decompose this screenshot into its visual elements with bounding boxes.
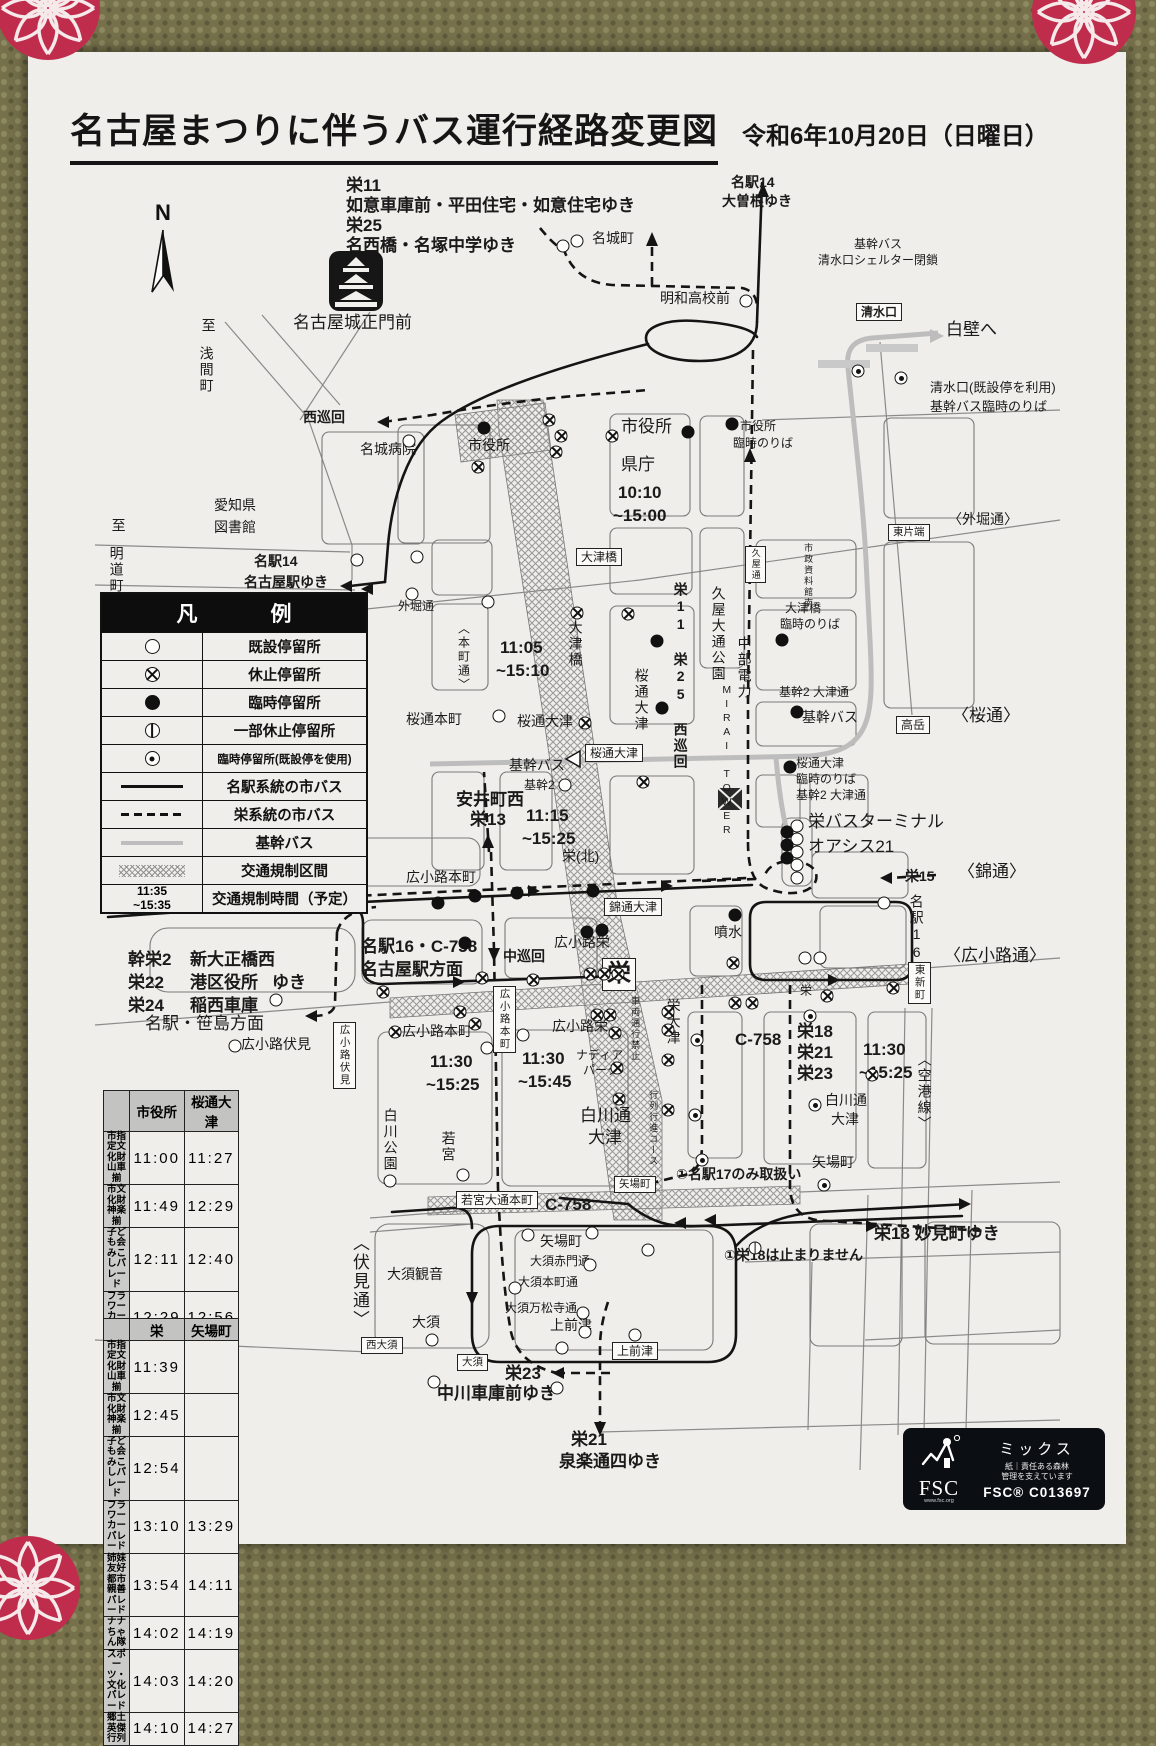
event-time: 13:29	[184, 1500, 239, 1553]
stop-symbol-c	[481, 1042, 494, 1055]
event-name: ナナちゃん隊	[104, 1617, 130, 1649]
map-label: 大津橋	[576, 548, 622, 566]
table-row: 子ども会 みこしパレード12:54	[104, 1436, 239, 1500]
stop-symbol-d	[469, 890, 482, 903]
map-label: 広小路栄	[552, 1019, 608, 1035]
stop-symbol-c	[270, 994, 283, 1007]
stop-symbol-x	[622, 608, 635, 621]
map-label: 名駅14	[731, 175, 775, 191]
map-label: C-758	[545, 1195, 591, 1214]
map-label: 錦通大津	[604, 898, 662, 916]
map-label: 車両通行禁止	[630, 996, 640, 1062]
stop-symbol-c	[571, 235, 584, 248]
map-label: 幹栄2	[128, 950, 171, 969]
map-label: 大須	[457, 1354, 488, 1371]
stop-symbol-cd	[804, 1010, 817, 1023]
legend-row: 臨時停留所(既設停を使用)	[102, 744, 366, 772]
map-label: 栄バスターミナル	[808, 812, 944, 831]
stop-symbol-x	[729, 997, 742, 1010]
fsc-line1: 紙｜責任ある森林	[975, 1462, 1099, 1472]
legend-row: 栄系統の市バス	[102, 800, 366, 828]
event-name: 市文化財 神楽揃	[104, 1394, 130, 1437]
map-label: 桜通大津	[517, 714, 573, 730]
legend-label: 交通規制区間	[203, 860, 366, 881]
map-label: 栄18 妙見町ゆき	[874, 1224, 1000, 1243]
stop-symbol-c	[577, 1307, 590, 1320]
stop-symbol-x	[598, 968, 611, 981]
map-label: 大須	[412, 1315, 440, 1331]
map-label: 大曽根ゆき	[722, 194, 792, 210]
legend-symbol: 11:35 ~15:35	[102, 885, 203, 912]
stop-symbol-x	[662, 1006, 675, 1019]
map-label: 名駅16	[908, 894, 924, 962]
map-label: 行列行進コース	[648, 1090, 658, 1167]
timetable-header	[104, 1319, 130, 1341]
legend-row: 既設停留所	[102, 632, 366, 660]
event-time	[184, 1341, 239, 1394]
map-label: 大須万松寺通	[505, 1302, 577, 1315]
stop-symbol-x	[579, 717, 592, 730]
event-time: 12:45	[130, 1394, 185, 1437]
timetable-header: 市役所	[130, 1091, 185, 1132]
event-name: 子ども会 みこしパレード	[104, 1227, 130, 1291]
stop-symbol-c	[559, 779, 572, 792]
stop-symbol-c	[229, 1040, 242, 1053]
map-label: 清水口シェルター閉鎖	[818, 254, 938, 267]
map-label: 市政資料館南	[803, 543, 813, 609]
map-label: 清水口	[856, 303, 902, 321]
stop-symbol-cd	[689, 1109, 702, 1122]
legend-symbol	[102, 829, 203, 856]
stop-symbol-c	[814, 952, 827, 965]
compass-needle-icon	[128, 226, 198, 306]
map-label: 大須本町通	[518, 1276, 578, 1289]
table-row: スポーツ・文化 パレード14:0314:20	[104, 1649, 239, 1713]
table-row: 市指定文化財 山車揃11:0011:27	[104, 1132, 239, 1185]
stop-symbol-h	[749, 1242, 762, 1255]
stop-symbol-d	[581, 926, 594, 939]
legend-row: 臨時停留所	[102, 688, 366, 716]
map-label: 〈桜通〉	[952, 706, 1020, 725]
poster-title: 名古屋まつりに伴うバス運行経路変更図	[70, 103, 718, 165]
event-time	[184, 1436, 239, 1500]
map-label: 白川公園	[382, 1108, 398, 1172]
map-label: 栄21	[571, 1430, 607, 1449]
stop-symbol-d	[682, 426, 695, 439]
nagoya-castle-icon	[328, 250, 384, 312]
legend-row: 一部休止停留所	[102, 716, 366, 744]
stop-symbol-x	[555, 430, 568, 443]
stop-symbol-cd	[809, 1099, 822, 1112]
map-label: 基幹バス臨時のりば	[930, 400, 1047, 415]
stop-symbol-c	[522, 1229, 535, 1242]
map-label: 白壁へ	[946, 320, 997, 339]
legend-row: 名駅系統の市バス	[102, 772, 366, 800]
stop-symbol-x	[476, 972, 489, 985]
map-label: 臨時のりば	[733, 437, 793, 450]
event-time: 14:20	[184, 1649, 239, 1713]
legend-label: 一部休止停留所	[203, 720, 366, 741]
pin-flower	[0, 0, 104, 64]
event-name: 市指定文化財 山車揃	[104, 1132, 130, 1185]
map-label: 11:30	[430, 1052, 473, 1071]
stop-symbol-d	[776, 634, 789, 647]
map-label: 〈空港線〉	[916, 1052, 932, 1132]
map-label: 11:30	[522, 1049, 565, 1068]
event-time: 11:49	[130, 1185, 185, 1228]
stop-symbol-c	[557, 240, 570, 253]
compass: N	[128, 200, 198, 311]
legend-label: 臨時停留所(既設停を使用)	[203, 751, 366, 767]
map-label: 〈伏見通〉	[350, 1234, 369, 1329]
map-label: 大津橋	[567, 620, 583, 668]
table-row: 姉妹友好都市 親善パレード13:5414:11	[104, 1553, 239, 1617]
map-label: 愛知県	[214, 498, 256, 514]
map-label: 矢場町	[812, 1155, 854, 1171]
pin-flower	[0, 1532, 84, 1644]
map-label: 清水口(既設停を利用)	[930, 381, 1056, 396]
map-label: 久屋大通公園	[710, 586, 726, 682]
map-label: 栄11	[346, 176, 381, 195]
map-label: 浅間町	[198, 346, 214, 394]
map-label: 泉楽通四ゆき	[559, 1452, 661, 1471]
map-label: 広小路本町	[493, 986, 516, 1053]
map-label: ~15:25	[426, 1075, 479, 1094]
map-label: 広小路栄	[554, 935, 610, 951]
map-label: 広小路本町	[406, 870, 476, 886]
stop-symbol-c	[584, 1259, 597, 1272]
map-label: 矢場町	[614, 1176, 656, 1193]
map-label: 臨時のりば	[796, 773, 856, 786]
event-time: 13:54	[130, 1553, 185, 1617]
stop-symbol-d	[596, 924, 609, 937]
stop-symbol-x	[866, 1069, 879, 1082]
map-label: ①栄18は止まりません	[724, 1248, 863, 1264]
legend-label: 名駅系統の市バス	[203, 776, 366, 797]
fsc-mix-label: ミックス	[975, 1438, 1099, 1459]
stop-symbol-cd	[691, 1034, 704, 1047]
event-time: 11:00	[130, 1132, 185, 1185]
timetable-header: 矢場町	[184, 1319, 239, 1341]
stop-symbol-x	[612, 968, 625, 981]
fsc-cert-number: FSC® C013697	[975, 1485, 1099, 1500]
stop-symbol-c	[411, 551, 424, 564]
map-label: 桜通本町	[406, 712, 462, 728]
map-label: ~15:00	[613, 506, 666, 525]
legend-symbol	[102, 661, 203, 688]
stop-symbol-x	[454, 1006, 467, 1019]
map-label: 基幹2	[524, 779, 555, 792]
event-time: 11:39	[130, 1341, 185, 1394]
map-label: C-758	[735, 1030, 781, 1049]
legend-symbol	[102, 773, 203, 800]
event-name: スポーツ・文化 パレード	[104, 1649, 130, 1713]
event-time: 12:54	[130, 1436, 185, 1500]
table-row: 市文化財 神楽揃11:4912:29	[104, 1185, 239, 1228]
map-label: 至	[110, 518, 126, 534]
stop-symbol-x	[662, 1024, 675, 1037]
map-label: 大須観音	[387, 1267, 443, 1283]
map-label: ~15:45	[518, 1072, 571, 1091]
stop-symbol-c	[642, 1244, 655, 1257]
photo-of-bus-route-poster: { "poster": { "title": "名古屋まつりに伴うバス運行経路変…	[0, 0, 1156, 1600]
legend-label: 栄系統の市バス	[203, 804, 366, 825]
stop-symbol-cd	[852, 365, 865, 378]
legend-label: 臨時停留所	[203, 692, 366, 713]
stop-symbol-x	[609, 1027, 622, 1040]
event-time: 12:29	[184, 1185, 239, 1228]
table-row: ナナちゃん隊14:0214:19	[104, 1617, 239, 1649]
stop-symbol-x	[550, 446, 563, 459]
map-label: 広小路伏見	[333, 1022, 356, 1089]
table-row: フラワーカー パレード13:1013:29	[104, 1500, 239, 1553]
map-label: 名古屋駅方面	[361, 960, 463, 979]
map-label: ナディア	[576, 1049, 623, 1062]
stop-symbol-x	[662, 1054, 675, 1067]
stop-symbol-x	[469, 1018, 482, 1031]
stop-symbol-c	[629, 1329, 642, 1342]
table-row: 市指定文化財 山車揃11:39	[104, 1341, 239, 1394]
stop-symbol-d	[478, 422, 491, 435]
stop-symbol-d	[784, 761, 797, 774]
legend-box: 凡 例 既設停留所休止停留所臨時停留所一部休止停留所臨時停留所(既設停を使用)名…	[100, 592, 368, 914]
map-label: 名城町	[592, 231, 634, 247]
map-label: 大津	[831, 1112, 859, 1128]
stop-symbol-d	[587, 885, 600, 898]
map-label: 基幹2 大津通	[796, 789, 866, 802]
map-label: 栄21	[797, 1043, 833, 1062]
event-time: 14:19	[184, 1617, 239, 1649]
map-label: 〈広小路通〉	[944, 946, 1046, 965]
map-label: 上前津	[612, 1342, 658, 1360]
legend-label: 休止停留所	[203, 664, 366, 685]
map-label: 白川通	[580, 1106, 631, 1125]
timetable: 栄矢場町市指定文化財 山車揃11:39市文化財 神楽揃12:45子ども会 みこし…	[103, 1318, 239, 1746]
map-label: 広小路本町	[402, 1024, 472, 1040]
map-label: 11:05	[500, 638, 543, 657]
map-label: 名駅・笹島方面	[145, 1014, 264, 1033]
map-label: 名古屋駅ゆき	[244, 575, 328, 591]
map-label: 栄23	[505, 1364, 541, 1383]
event-name: 市文化財 神楽揃	[104, 1185, 130, 1228]
stop-symbol-d	[781, 826, 794, 839]
map-label: ~15:25	[522, 829, 575, 848]
event-time: 14:03	[130, 1649, 185, 1713]
stop-symbol-c	[351, 554, 364, 567]
event-time: 12:40	[184, 1227, 239, 1291]
map-label: 基幹バス	[854, 238, 902, 251]
legend-row: 11:35 ~15:35交通規制時間（予定）	[102, 884, 366, 912]
map-label: 基幹バス	[802, 710, 858, 726]
stop-symbol-c	[403, 435, 416, 448]
map-label: 11:15	[526, 806, 569, 825]
stop-symbol-c	[406, 588, 419, 601]
legend-symbol	[102, 857, 203, 884]
event-name: 姉妹友好都市 親善パレード	[104, 1553, 130, 1617]
map-label: 市役所	[468, 438, 510, 454]
map-label: 10:10	[618, 483, 661, 502]
stop-symbol-d	[729, 909, 742, 922]
legend-row: 休止停留所	[102, 660, 366, 688]
map-label: ゆき	[272, 973, 306, 992]
event-time: 13:10	[130, 1500, 185, 1553]
stop-symbol-x	[613, 1093, 626, 1106]
stop-symbol-x	[377, 986, 390, 999]
map-label: 明和高校前	[660, 291, 730, 307]
table-row: 市文化財 神楽揃12:45	[104, 1394, 239, 1437]
map-label: 名駅14	[254, 554, 298, 570]
map-label: 図書館	[214, 520, 256, 536]
map-label: 若宮大通本町	[456, 1191, 538, 1209]
timetable-header: 栄	[130, 1319, 185, 1341]
map-label: 白川通	[825, 1093, 867, 1109]
stop-symbol-d	[791, 706, 804, 719]
fsc-badge: FSC www.fsc.org ミックス 紙｜責任ある森林 管理を支えています …	[903, 1428, 1105, 1510]
map-label: 至	[200, 318, 216, 334]
stop-symbol-c	[878, 897, 891, 910]
map-label: 基幹バス	[509, 758, 565, 774]
map-label: 栄22	[128, 973, 164, 992]
map-label: 〈錦通〉	[958, 862, 1026, 881]
event-name: フラワーカー パレード	[104, 1500, 130, 1553]
map-label: 噴水	[714, 925, 742, 941]
legend-symbol	[102, 717, 203, 744]
stop-symbol-x	[389, 1026, 402, 1039]
stop-symbol-cd	[895, 372, 908, 385]
map-label: 東片端	[888, 524, 930, 541]
event-time: 14:27	[184, 1713, 239, 1745]
event-time	[184, 1394, 239, 1437]
table-row: 郷土英傑行列14:1014:27	[104, 1713, 239, 1745]
legend-symbol	[102, 633, 203, 660]
stop-symbol-x	[472, 461, 485, 474]
fsc-tree-icon	[917, 1434, 961, 1474]
map-label: 桜通大津	[585, 744, 643, 762]
map-label: 栄13	[470, 810, 506, 829]
table-row: 子ども会 みこしパレード12:1112:40	[104, 1227, 239, 1291]
map-label: ~15:10	[496, 661, 549, 680]
map-label: MIRAI TOWER	[720, 684, 732, 838]
legend-label: 交通規制時間（予定）	[203, 888, 366, 909]
map-label: 11:30	[863, 1040, 906, 1059]
map-label: 若宮	[440, 1131, 456, 1163]
map-label: 県庁	[621, 455, 655, 474]
stop-symbol-x	[746, 997, 759, 1010]
map-label: オアシス21	[808, 837, 894, 856]
legend-symbol	[102, 801, 203, 828]
legend-row: 交通規制区間	[102, 856, 366, 884]
stop-symbol-d	[781, 839, 794, 852]
stop-symbol-d	[726, 418, 739, 431]
map-label: 〈本町通〉	[456, 622, 469, 692]
map-label: 大須赤門通	[530, 1255, 590, 1268]
stop-symbol-d	[432, 897, 445, 910]
stop-symbol-x	[637, 776, 650, 789]
map-label: 港区役所	[190, 973, 258, 992]
map-label: 外堀通	[398, 600, 434, 613]
legend-label: 基幹バス	[203, 832, 366, 853]
stop-symbol-c	[791, 872, 804, 885]
map-label: 矢場町	[540, 1234, 582, 1250]
event-time: 14:11	[184, 1553, 239, 1617]
stop-symbol-c	[579, 1326, 592, 1339]
stop-symbol-x	[604, 1009, 617, 1022]
stop-symbol-x	[584, 968, 597, 981]
stop-symbol-c	[384, 1175, 397, 1188]
stop-symbol-cd	[696, 1154, 709, 1167]
event-time: 12:11	[130, 1227, 185, 1291]
map-label: 東新町	[908, 962, 931, 1004]
stop-symbol-d	[781, 852, 794, 865]
stop-symbol-d	[511, 887, 524, 900]
event-name: 子ども会 みこしパレード	[104, 1436, 130, 1500]
map-label: 西大須	[361, 1337, 403, 1354]
map-label: 名古屋城正門前	[293, 313, 412, 332]
stop-symbol-c	[517, 1029, 530, 1042]
event-time: 14:02	[130, 1617, 185, 1649]
map-label: 〈外堀通〉	[948, 512, 1018, 528]
event-name: 郷土英傑行列	[104, 1713, 130, 1745]
map-label: 栄11 栄25 西巡回	[672, 582, 688, 770]
route-arrows	[305, 183, 971, 1436]
stop-symbol-cd	[818, 1179, 831, 1192]
event-name: 市指定文化財 山車揃	[104, 1341, 130, 1394]
map-label: 稲西車庫	[190, 996, 258, 1015]
stop-symbol-c	[551, 1382, 564, 1395]
map-label: 栄	[798, 984, 811, 998]
map-label: 如意車庫前・平田住宅・如意住宅ゆき	[346, 196, 635, 215]
fsc-line2: 管理を支えています	[975, 1472, 1099, 1482]
map-label: 明道町	[108, 546, 124, 594]
map-label: 大津	[588, 1128, 622, 1147]
map-label: 西巡回	[303, 410, 345, 426]
map-label: 高岳	[896, 716, 930, 734]
map-label: 桜通大津	[633, 668, 649, 732]
map-label: 栄24	[128, 996, 164, 1015]
event-time: 14:10	[130, 1713, 185, 1745]
stop-symbol-x	[543, 414, 556, 427]
map-label: ①名駅17のみ取扱い	[676, 1167, 801, 1183]
map-label: 栄15	[905, 869, 935, 885]
fsc-url: www.fsc.org	[903, 1498, 975, 1504]
map-label: 安井町西	[456, 790, 524, 809]
map-label: 臨時のりば	[780, 618, 840, 631]
map-label: 広小路伏見	[241, 1037, 311, 1053]
stop-symbol-x	[662, 1104, 675, 1117]
pin-flower	[1028, 0, 1140, 68]
stop-symbol-c	[509, 1282, 522, 1295]
map-label: 栄(北)	[562, 849, 599, 865]
legend-symbol	[102, 689, 203, 716]
legend-symbol	[102, 745, 203, 772]
stop-symbol-c	[428, 1376, 441, 1389]
event-time: 11:27	[184, 1132, 239, 1185]
stop-symbol-c	[482, 596, 495, 609]
stop-symbol-x	[887, 982, 900, 995]
map-label: 栄18	[797, 1022, 833, 1041]
legend-header: 凡 例	[102, 594, 366, 632]
legend-label: 既設停留所	[203, 636, 366, 657]
timetable-header	[104, 1091, 130, 1132]
map-label: 久屋通	[745, 546, 766, 583]
stop-symbol-c	[493, 710, 506, 723]
stop-symbol-x	[821, 990, 834, 1003]
stop-symbol-x	[571, 607, 584, 620]
timetable-header: 桜通大津	[184, 1091, 239, 1132]
legend-row: 基幹バス	[102, 828, 366, 856]
compass-n-label: N	[155, 200, 171, 225]
map-label: 市役所	[740, 420, 776, 433]
